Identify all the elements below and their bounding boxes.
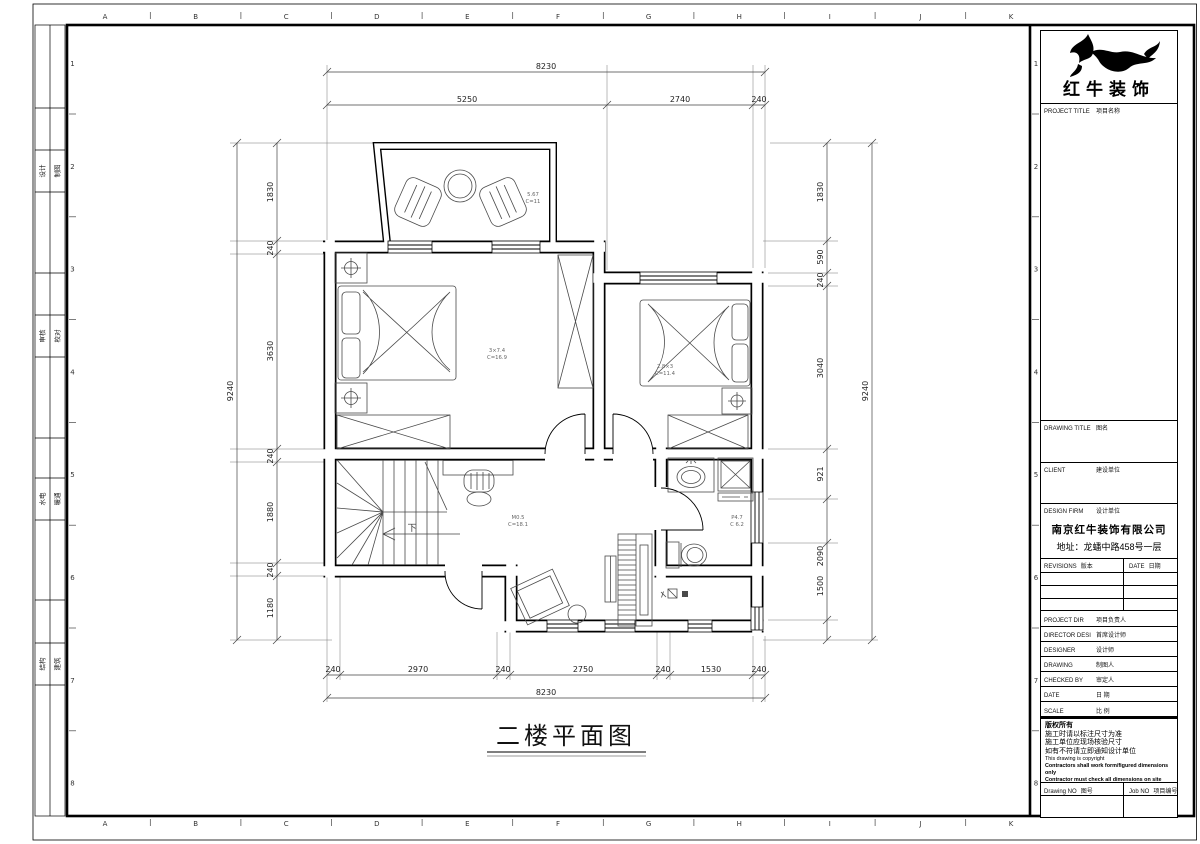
piano — [618, 534, 652, 626]
master-bedroom-furniture — [335, 253, 593, 449]
balcony-table — [444, 170, 476, 202]
row-number: 7 — [70, 677, 74, 685]
revisions-label-en: REVISIONS — [1044, 564, 1077, 570]
project-title-cell: PROJECT TITLE项目名称 — [1040, 103, 1178, 421]
svg-text:5250: 5250 — [457, 95, 477, 104]
logo-cell: 红牛装饰 — [1040, 30, 1178, 104]
notes-cell: 版权所有 施工时请以标注尺寸为准 施工单位应现场核验尺寸 如有不符请立即通知设计… — [1040, 718, 1178, 783]
svg-text:240: 240 — [325, 665, 340, 674]
discipline-strip: 设计 制图 审核 校对 水电 暖通 结构 建筑 — [35, 25, 65, 816]
date-col-label-en: DATE — [1129, 564, 1145, 570]
row-number: 5 — [1034, 471, 1038, 479]
door-bathroom — [661, 488, 703, 530]
col-letter: B — [193, 13, 198, 21]
row-number: 3 — [70, 266, 74, 274]
col-letter: K — [1009, 13, 1014, 21]
col-letter: E — [465, 820, 469, 828]
piano-bench — [605, 556, 616, 602]
margin-stamp: 制图 — [53, 165, 62, 178]
row-project-dir: PROJECT DIR项目负责人 — [1040, 610, 1178, 627]
col-letter: K — [1009, 820, 1014, 828]
svg-text:C=11: C=11 — [526, 199, 541, 205]
dimension-labels: 8230 5250 2740 240 240 2970 240 2750 240… — [226, 62, 870, 697]
col-letter: B — [193, 820, 198, 828]
drawing-title-label-en: DRAWING TITLE — [1044, 426, 1096, 432]
row-date: DATE日 期 — [1040, 686, 1178, 702]
svg-text:1880: 1880 — [266, 502, 275, 522]
margin-stamp: 水电 — [38, 492, 47, 506]
col-letter: E — [465, 13, 469, 21]
balcony-furniture — [392, 170, 529, 229]
col-letter: I — [829, 820, 831, 828]
window — [688, 620, 712, 632]
ruler-numbers-right: 12345678 — [1032, 60, 1039, 788]
floor-drain-icon — [661, 589, 688, 598]
row-number: 3 — [1034, 266, 1038, 274]
project-title-label-en: PROJECT TITLE — [1044, 109, 1096, 115]
plan-title: 二楼平面图 — [487, 722, 646, 756]
col-letter: A — [103, 13, 108, 21]
col-letter: G — [646, 820, 651, 828]
row-director-designer: DIRECTOR DESI首席设计师 — [1040, 626, 1178, 642]
row-designer: DESIGNER设计师 — [1040, 641, 1178, 657]
date-col-label-zh: 日期 — [1149, 564, 1161, 570]
wardrobe — [668, 415, 748, 449]
walls — [323, 146, 764, 633]
cad-sheet: { "sheet": { "col_letters": ["A","B","C"… — [0, 0, 1200, 844]
row-number: 2 — [70, 163, 74, 171]
svg-text:2750: 2750 — [573, 665, 593, 674]
col-letter: I — [829, 13, 831, 21]
client-label-en: CLIENT — [1044, 468, 1096, 474]
col-letter: H — [737, 820, 742, 828]
col-letter: G — [646, 13, 651, 21]
col-letter: C — [284, 820, 289, 828]
ruler-letters-top: ABCDEFGHIJK — [103, 12, 1014, 21]
pillow — [342, 292, 360, 334]
doors — [445, 414, 703, 609]
svg-text:240: 240 — [266, 448, 275, 463]
margin-stamp: 审核 — [38, 329, 47, 343]
window — [751, 607, 763, 630]
row-number: 8 — [1034, 780, 1038, 788]
svg-text:1500: 1500 — [816, 576, 825, 596]
margin-stamp: 校对 — [53, 329, 62, 343]
row-number: 5 — [70, 471, 74, 479]
drawing-title-label-zh: 图名 — [1096, 426, 1108, 432]
svg-text:921: 921 — [816, 466, 825, 481]
svg-text:C=11.4: C=11.4 — [655, 371, 676, 377]
row-number: 1 — [1034, 60, 1038, 68]
firm-name: 南京红牛装饰有限公司 — [1041, 522, 1177, 537]
svg-text:9240: 9240 — [226, 381, 235, 401]
brand-name: 红牛装饰 — [1041, 75, 1177, 100]
row-number: 7 — [1034, 677, 1038, 685]
col-letter: C — [284, 13, 289, 21]
svg-text:2090: 2090 — [816, 546, 825, 566]
margin-stamp: 建筑 — [53, 657, 62, 671]
row-drawing: DRAWING制图人 — [1040, 656, 1178, 672]
svg-text:5.67: 5.67 — [527, 192, 539, 198]
balcony-chair — [477, 175, 529, 229]
svg-text:240: 240 — [495, 665, 510, 674]
revisions-label-zh: 版本 — [1081, 564, 1093, 570]
firm-address: 地址：龙蟠中路458号一层 — [1041, 540, 1177, 553]
margin-stamp: 设计 — [38, 164, 47, 178]
hongniu-bull-logo-icon — [1058, 33, 1162, 77]
drawing-title-cell: DRAWING TITLE图名 — [1040, 420, 1178, 463]
design-firm-label-en: DESIGN FIRM — [1044, 509, 1096, 515]
window — [492, 241, 540, 253]
svg-text:1830: 1830 — [816, 182, 825, 202]
door-master — [545, 414, 585, 454]
svg-text:C=18.1: C=18.1 — [508, 522, 528, 528]
svg-text:240: 240 — [655, 665, 670, 674]
svg-text:240: 240 — [266, 240, 275, 255]
bed-drape — [363, 290, 450, 374]
col-letter: J — [918, 13, 921, 21]
balcony-chair — [392, 175, 444, 229]
project-title-label-zh: 项目名称 — [1096, 109, 1120, 115]
door-bedroom2 — [613, 414, 653, 454]
drawing-no-header: Drawing NO图号 Job NO项目编号 — [1040, 782, 1178, 796]
svg-text:1180: 1180 — [266, 598, 275, 618]
col-letter: H — [737, 13, 742, 21]
svg-text:240: 240 — [266, 562, 275, 577]
svg-text:3×7.4: 3×7.4 — [489, 348, 506, 354]
svg-text:240: 240 — [816, 272, 825, 287]
client-label-zh: 建设单位 — [1096, 468, 1120, 474]
svg-text:3630: 3630 — [266, 341, 275, 361]
svg-text:240: 240 — [751, 95, 766, 104]
design-firm-label-zh: 设计单位 — [1096, 509, 1120, 515]
svg-text:1830: 1830 — [266, 182, 275, 202]
pillow — [342, 338, 360, 378]
family-room-furniture — [443, 461, 652, 627]
wardrobe — [337, 415, 450, 449]
col-letter: A — [103, 820, 108, 828]
col-letter: F — [556, 13, 560, 21]
row-number: 4 — [1034, 368, 1039, 376]
pillow — [732, 344, 748, 382]
shower-tray — [718, 458, 753, 491]
row-number: 1 — [70, 60, 74, 68]
desk — [443, 461, 513, 476]
drawing-no-box — [1040, 795, 1178, 818]
svg-text:2740: 2740 — [670, 95, 690, 104]
faucet-icon — [686, 461, 696, 464]
window — [640, 272, 717, 284]
client-cell: CLIENT建设单位 — [1040, 462, 1178, 504]
stair-arrow — [383, 528, 460, 540]
window — [388, 241, 432, 253]
col-letter: D — [374, 820, 379, 828]
svg-text:二楼平面图: 二楼平面图 — [496, 722, 636, 750]
pillow — [732, 304, 748, 340]
row-number: 2 — [1034, 163, 1038, 171]
col-letter: F — [556, 820, 560, 828]
row-number: 6 — [70, 574, 75, 582]
ceiling-lamp-icon — [341, 388, 361, 408]
svg-text:3040: 3040 — [816, 358, 825, 378]
ruler-letters-bottom: ABCDEFGHIJK — [103, 819, 1014, 828]
floor-plan: 下 — [226, 62, 878, 756]
floor-plan-sheet: 设计 制图 审核 校对 水电 暖通 结构 建筑 ABCDEFGHIJK ABCD… — [0, 0, 1200, 844]
outer-border — [33, 4, 1197, 840]
tilted-cabinet — [511, 569, 570, 625]
stairs: 下 — [337, 460, 460, 565]
master-bed — [338, 286, 456, 380]
washer-strip — [718, 493, 753, 501]
closet — [558, 255, 593, 388]
door-family — [445, 571, 482, 609]
revisions-table: REVISIONS版本 DATE日期 — [1040, 558, 1178, 611]
row-number: 8 — [70, 780, 74, 788]
col-letter: D — [374, 13, 379, 21]
svg-text:C=16.9: C=16.9 — [487, 355, 507, 361]
svg-text:2.8×3: 2.8×3 — [657, 364, 673, 370]
svg-text:1530: 1530 — [701, 665, 721, 674]
svg-text:9240: 9240 — [861, 381, 870, 401]
design-firm-cell: DESIGN FIRM设计单位 南京红牛装饰有限公司 地址：龙蟠中路458号一层 — [1040, 503, 1178, 559]
svg-text:C 6.2: C 6.2 — [730, 522, 744, 528]
row-number: 4 — [70, 368, 75, 376]
col-letter: J — [918, 820, 921, 828]
svg-text:M0.5: M0.5 — [512, 515, 525, 521]
row-checked-by: CHECKED BY审定人 — [1040, 671, 1178, 687]
stair-break-line — [425, 462, 447, 510]
svg-text:P4.7: P4.7 — [731, 515, 743, 521]
svg-text:590: 590 — [816, 249, 825, 264]
toilet — [666, 542, 707, 568]
stair-direction-label: 下 — [407, 524, 416, 534]
ruler-numbers-left: 12345678 — [69, 60, 76, 788]
row-number: 6 — [1034, 574, 1039, 582]
margin-stamp: 暖通 — [53, 492, 62, 506]
ceiling-lamp-icon — [728, 392, 746, 410]
svg-text:8230: 8230 — [536, 688, 556, 697]
margin-stamp: 结构 — [38, 657, 47, 671]
svg-text:8230: 8230 — [536, 62, 556, 71]
svg-text:2970: 2970 — [408, 665, 428, 674]
svg-text:240: 240 — [751, 665, 766, 674]
ceiling-lamp-icon — [341, 258, 361, 278]
